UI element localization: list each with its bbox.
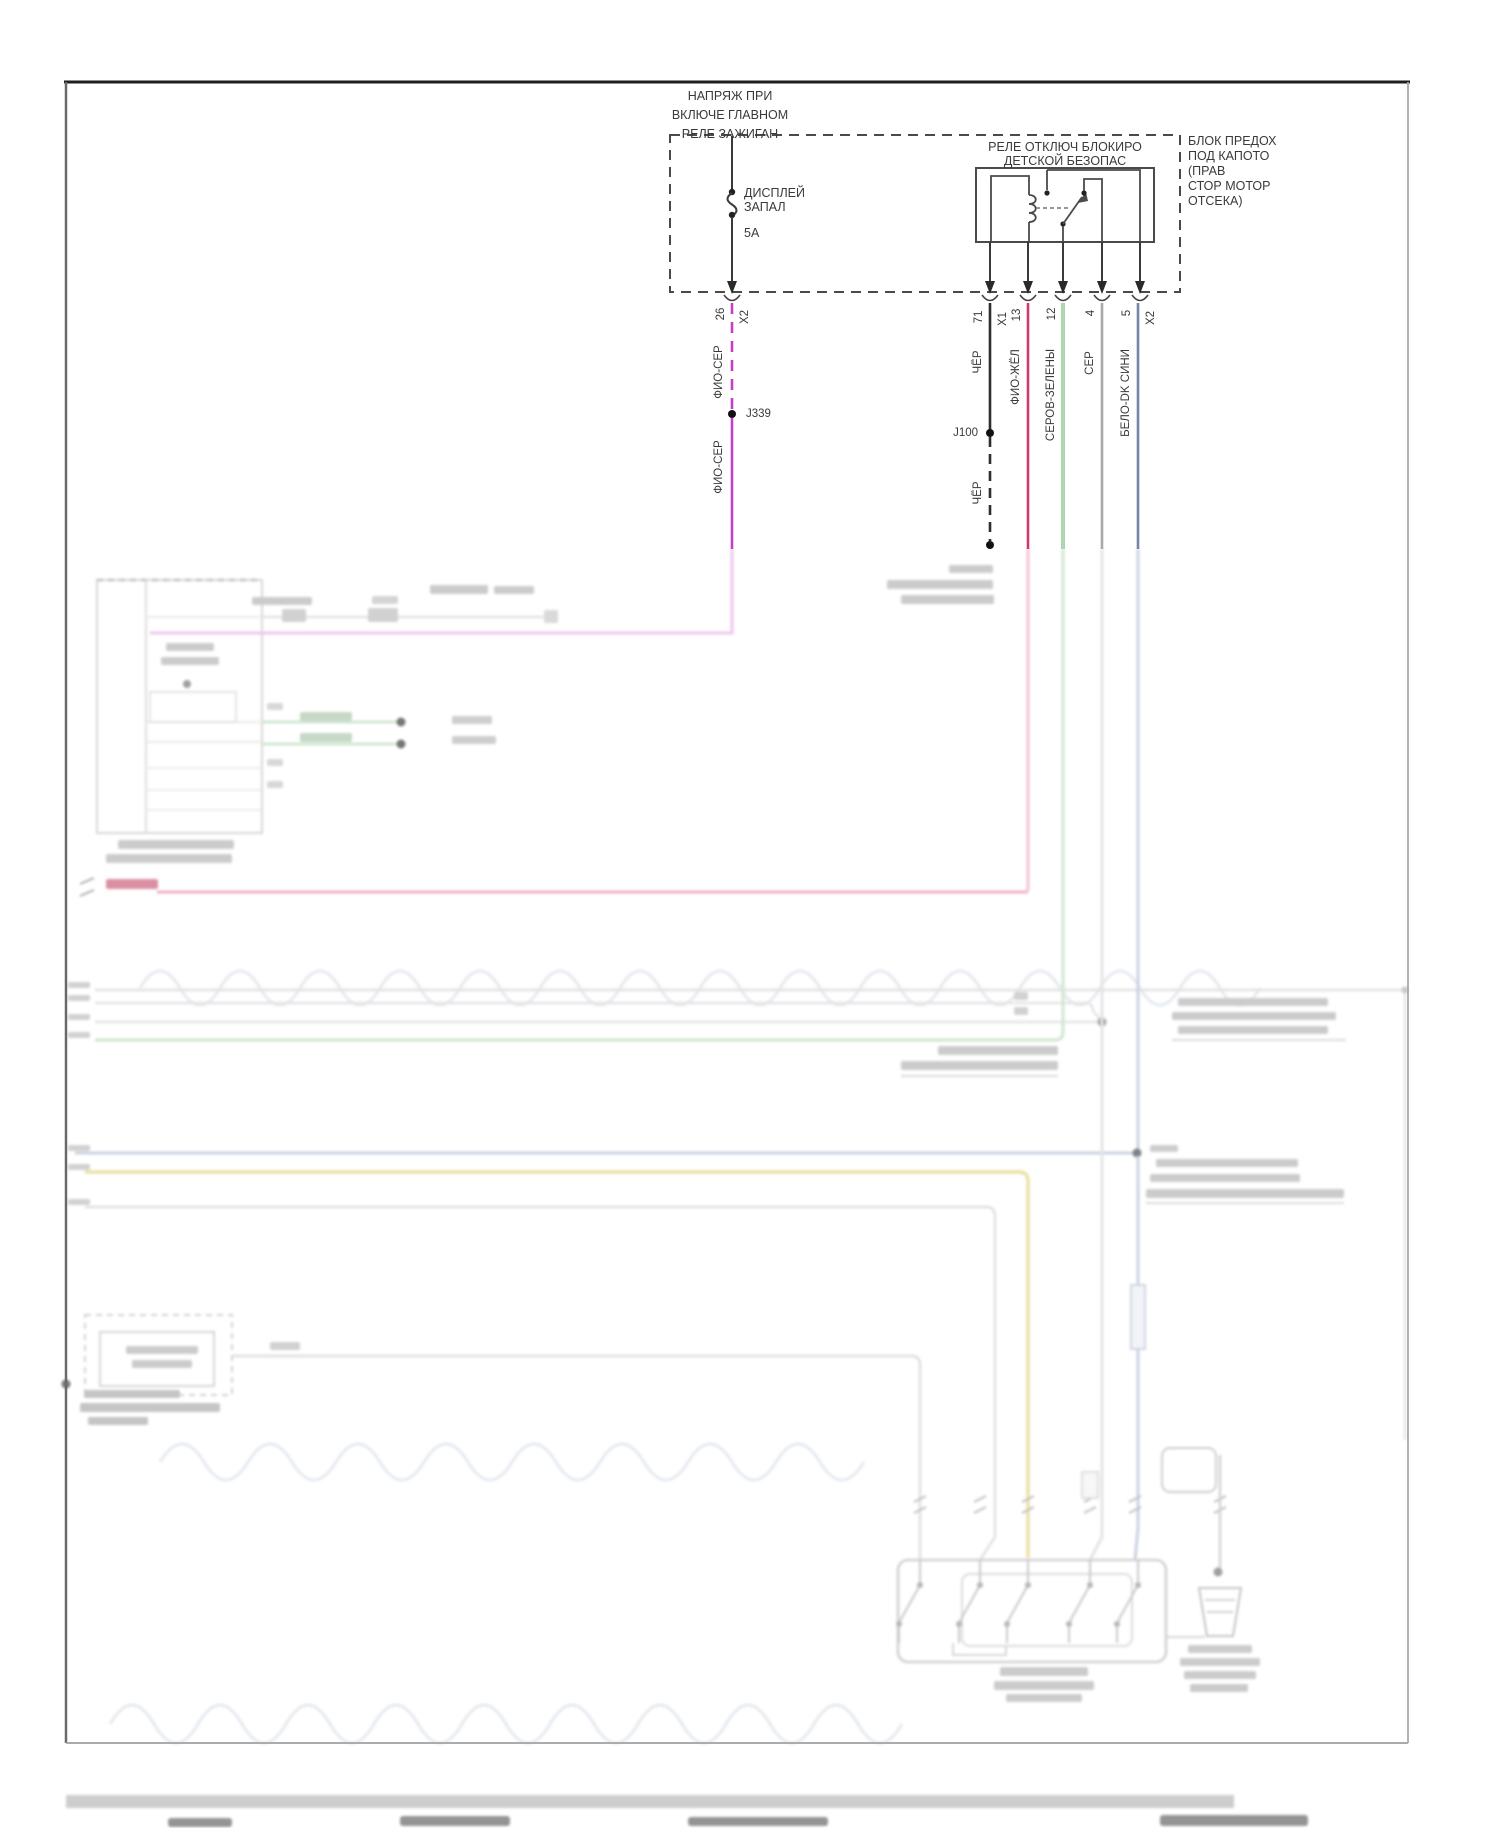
wire-label-serov-zeleny: СЕРОВ-ЗЕЛЕНЫ	[1045, 349, 1057, 441]
pin-5: 5	[1121, 310, 1133, 316]
junction-j100-dot	[986, 429, 994, 437]
conn-x1: X1	[997, 312, 1009, 326]
power-note-line2: ВКЛЮЧЕ ГЛАВНОМ	[640, 108, 820, 122]
junction-j339-label: J339	[746, 407, 771, 421]
relay-title-line1: РЕЛЕ ОТКЛЮЧ БЛОКИРО	[960, 140, 1170, 154]
wire-fio-ser	[728, 303, 736, 549]
pin-71: 71	[973, 311, 985, 324]
fuse-assembly	[728, 136, 737, 283]
pin-4: 4	[1085, 310, 1097, 316]
wire-label-cher-upper: ЧЁР	[972, 350, 984, 373]
exit-wires-arrows	[727, 242, 1145, 294]
wire-label-fio-zhel: ФИО-ЖЁЛ	[1010, 349, 1022, 405]
pin-12: 12	[1046, 308, 1058, 321]
fuse-name-line1: ДИСПЛЕЙ	[744, 186, 805, 200]
junction-j339-dot	[728, 410, 736, 418]
pin-26: 26	[715, 308, 727, 321]
fuse-block-label-line2: ПОД КАПОТО	[1188, 149, 1269, 163]
junction-j100-label: J100	[906, 426, 978, 440]
wire-label-fio-ser-lower: ФИО-СЕР	[713, 440, 725, 493]
fuse-rating: 5А	[744, 226, 759, 240]
conn-x2-b: X2	[1145, 311, 1157, 325]
fuse-block-label-line1: БЛОК ПРЕДОХ	[1188, 134, 1277, 148]
wire-end-dot	[986, 541, 994, 549]
wire-label-fio-ser-upper: ФИО-СЕР	[713, 345, 725, 398]
page-border	[64, 82, 1410, 1743]
wire-label-ser: СЕР	[1084, 351, 1096, 375]
connector-brackets	[724, 295, 1148, 301]
wire-cher	[986, 303, 994, 549]
power-note-line1: НАПРЯЖ ПРИ	[640, 89, 820, 103]
conn-x2-a: X2	[739, 310, 751, 324]
pin-13: 13	[1011, 309, 1023, 322]
wire-label-belo-dk-sini: БЕЛО-DK СИНИ	[1120, 349, 1132, 437]
fuse-block-label-line5: ОТСЕКА)	[1188, 194, 1243, 208]
relay-assembly	[976, 168, 1154, 242]
fuse-name-line2: ЗАПАЛ	[744, 200, 786, 214]
wire-label-cher-lower: ЧЁР	[972, 481, 984, 504]
fuse-block-label-line4: СТОР МОТОР	[1188, 179, 1271, 193]
fuse-block-label-line3: (ПРАВ	[1188, 164, 1225, 178]
crisp-diagram-layer	[0, 0, 1500, 1828]
power-note-line3: РЕЛЕ ЗАЖИГАН	[640, 127, 820, 141]
wiring-diagram-page: НАПРЯЖ ПРИ ВКЛЮЧЕ ГЛАВНОМ РЕЛЕ ЗАЖИГАН Р…	[0, 0, 1500, 1828]
relay-title-line2: ДЕТСКОЙ БЕЗОПАС	[960, 154, 1170, 168]
